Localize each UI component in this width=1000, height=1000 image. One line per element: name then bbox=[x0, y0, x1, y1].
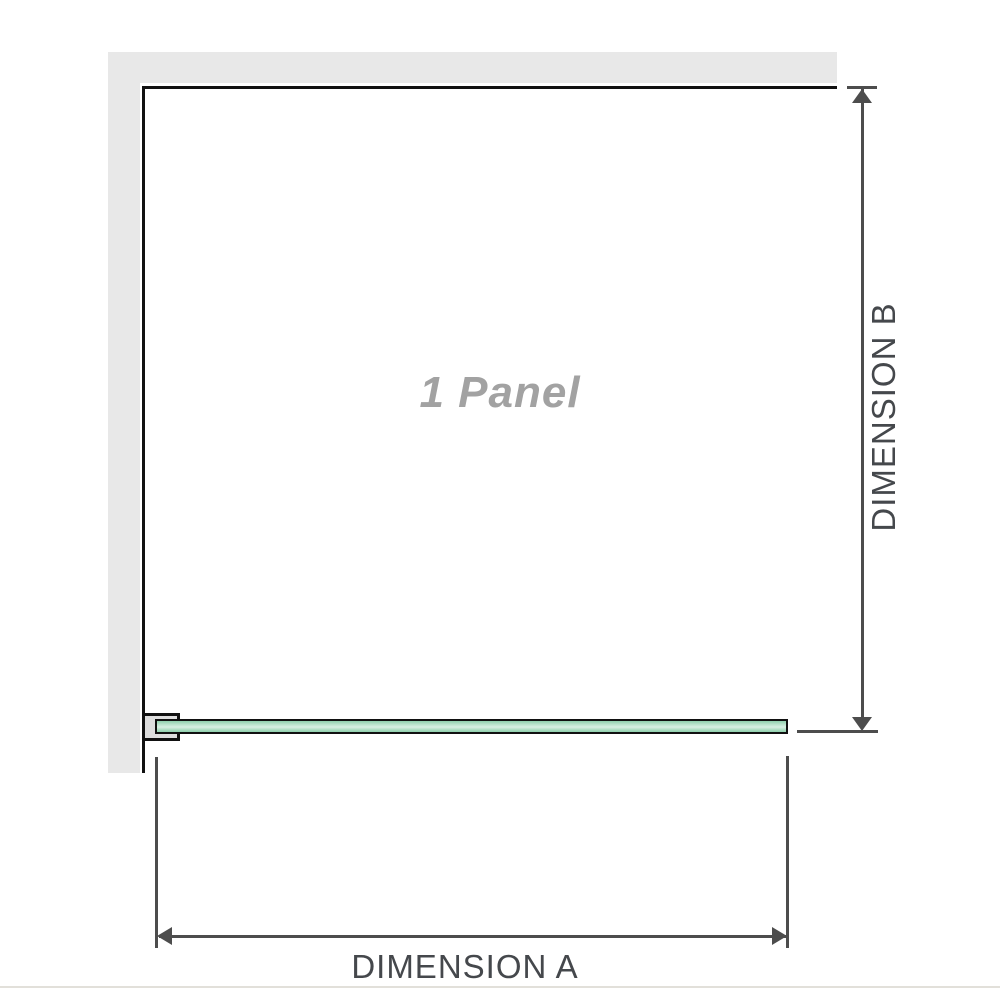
panel-outline-top bbox=[143, 86, 837, 89]
dimension-a-label: DIMENSION A bbox=[315, 948, 615, 986]
panel-label: 1 Panel bbox=[370, 368, 630, 418]
dimension-b-arrow-up-icon bbox=[852, 89, 872, 103]
dimension-a-extension-left bbox=[155, 757, 158, 948]
dimension-b-line bbox=[861, 89, 864, 719]
dimension-a-arrow-left-icon bbox=[157, 927, 172, 945]
dimension-a-arrow-right-icon bbox=[772, 927, 787, 945]
dimension-diagram: 1 Panel DIMENSION B DIMENSION A bbox=[0, 0, 1000, 1000]
dimension-a-line bbox=[159, 935, 787, 938]
dimension-b-arrow-down-icon bbox=[852, 717, 872, 731]
panel-outline-left bbox=[142, 86, 145, 773]
glass-panel-bar bbox=[155, 719, 788, 734]
top-wall bbox=[108, 52, 837, 83]
bottom-divider bbox=[0, 986, 1000, 988]
left-wall bbox=[108, 52, 140, 773]
dimension-b-label: DIMENSION B bbox=[867, 217, 901, 617]
dimension-a-extension-right bbox=[786, 756, 789, 948]
